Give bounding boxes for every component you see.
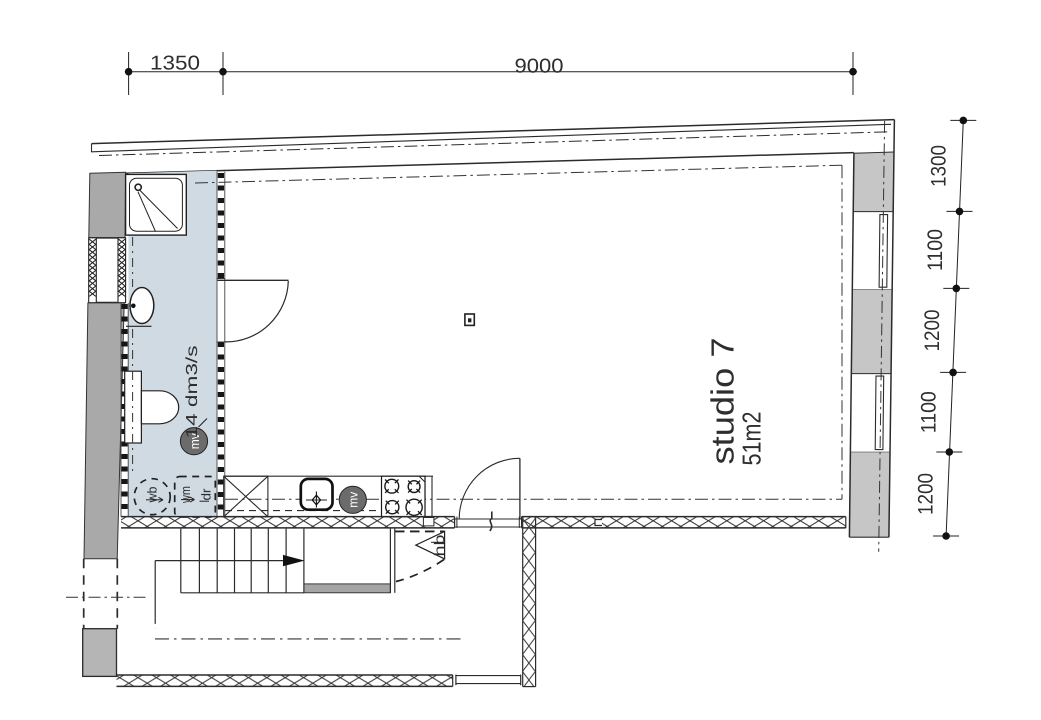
svg-text:wb: wb [145,487,160,504]
svg-text:mv: mv [346,491,361,507]
svg-text:hb: hb [431,534,447,556]
svg-text:1300: 1300 [928,145,951,187]
svg-text:dr: dr [199,488,214,501]
svg-text:51m2: 51m2 [737,412,767,466]
svg-text:14 dm3/s: 14 dm3/s [184,346,201,439]
svg-text:9000: 9000 [515,56,564,78]
svg-text:1200: 1200 [915,473,938,515]
svg-text:1100: 1100 [918,391,941,433]
svg-text:1100: 1100 [924,229,947,271]
svg-text:1350: 1350 [150,53,200,75]
svg-text:studio 7: studio 7 [705,338,741,465]
svg-text:1200: 1200 [921,310,944,352]
